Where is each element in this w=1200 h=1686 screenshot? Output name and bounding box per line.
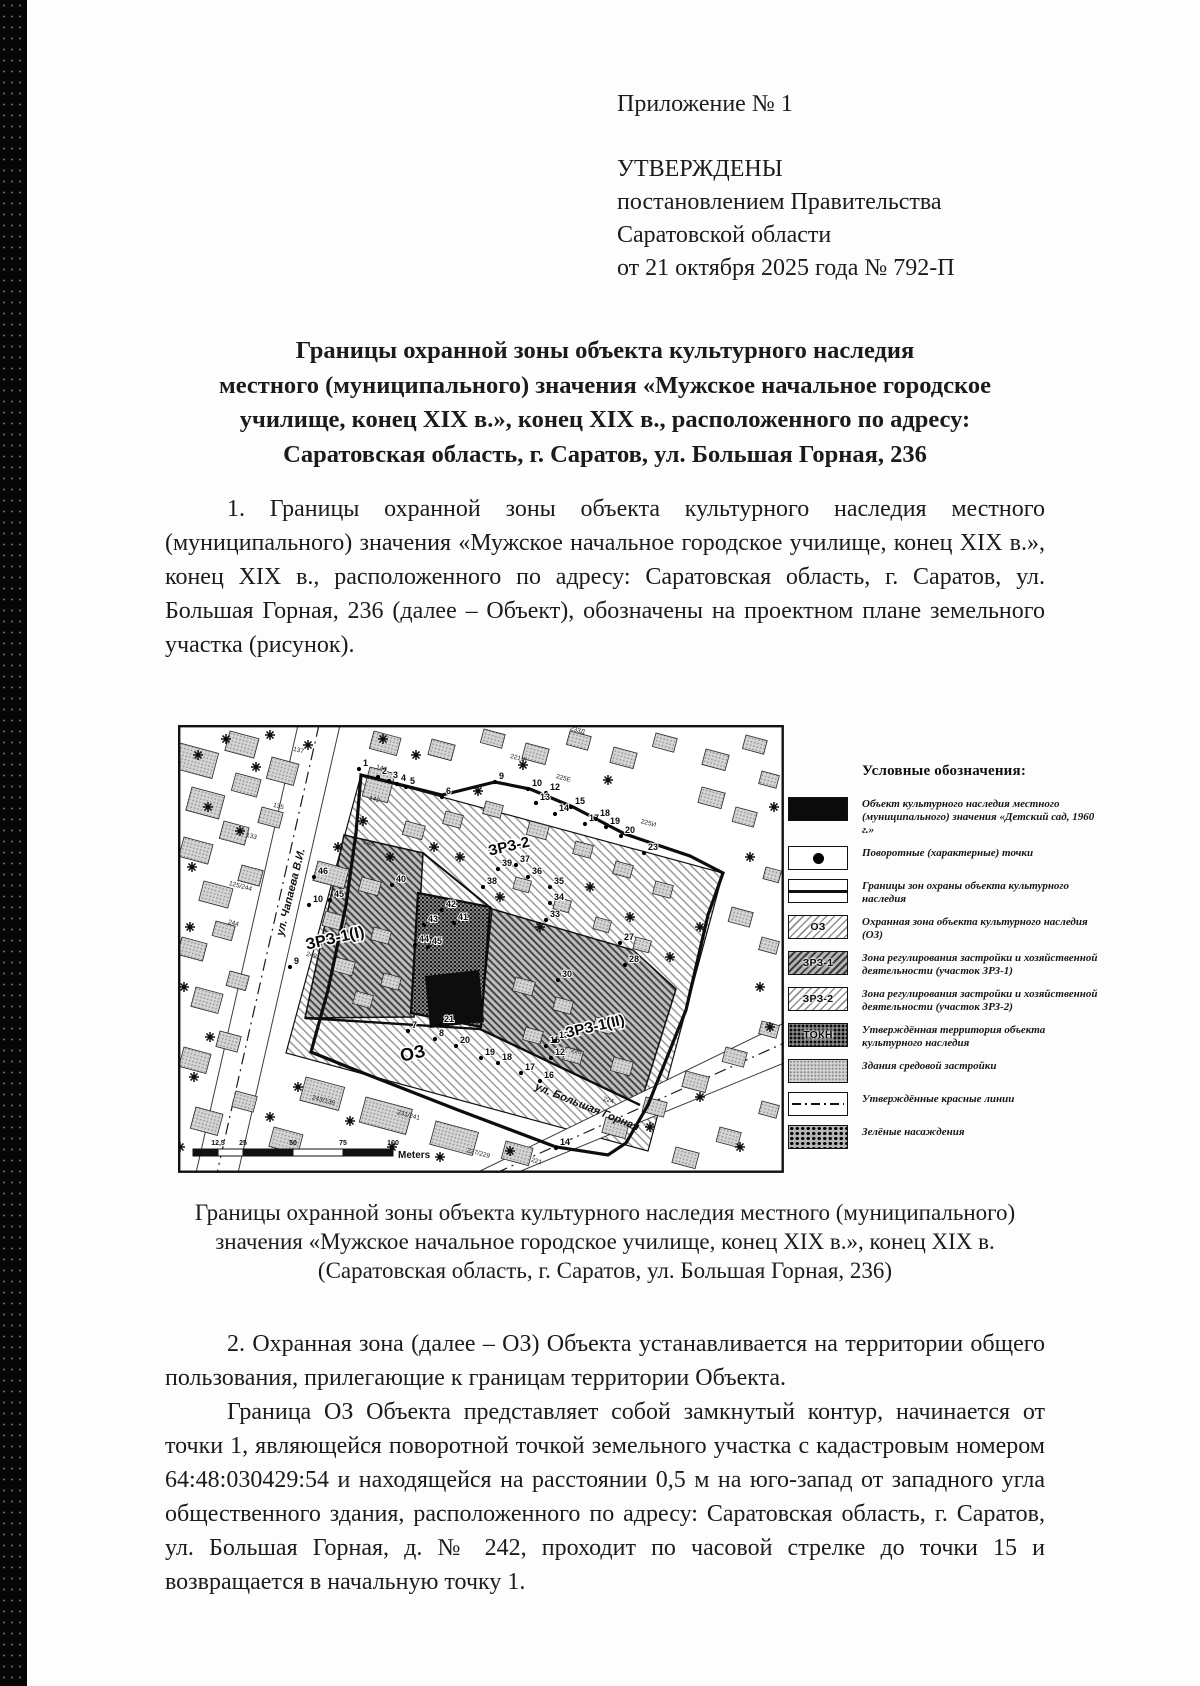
approval-line: постановлением Правительства	[617, 186, 955, 219]
legend-item: Границы зон охраны объекта культурного н…	[788, 879, 1100, 906]
approval-line: Саратовской области	[617, 219, 955, 252]
tree-icon	[333, 842, 343, 852]
scale-tick-label: 75	[339, 1140, 347, 1147]
legend-swatch-sw-hatch: ЗРЗ-2	[788, 987, 848, 1011]
legend-item: ЗРЗ-2Зона регулирования застройки и хозя…	[788, 987, 1100, 1014]
tree-icon	[358, 816, 368, 826]
turning-point-number: 38	[487, 876, 497, 886]
turning-point-number: 34	[554, 892, 564, 902]
approval-line: от 21 октября 2025 года № 792-П	[617, 252, 955, 285]
site-plan-map: 1234569101213141517181920232728303334353…	[178, 725, 784, 1173]
turning-point-dot	[493, 780, 497, 784]
turning-point-dot	[642, 851, 646, 855]
turning-point-number: 30	[562, 969, 572, 979]
turning-point-number: 35	[554, 876, 564, 886]
legend-item: Зелёные насаждения	[788, 1125, 1100, 1149]
legend-label: Объект культурного наследия местного (му…	[862, 797, 1100, 837]
turning-point-dot	[526, 787, 530, 791]
turning-point-dot	[604, 825, 608, 829]
turning-point-dot	[544, 918, 548, 922]
tree-icon	[187, 862, 197, 872]
legend-swatch-sw-object	[788, 797, 848, 821]
legend-label: Зона регулирования застройки и хозяйстве…	[862, 951, 1100, 978]
scale-bar-segment	[293, 1149, 343, 1156]
tree-icon	[293, 1082, 303, 1092]
legend-label: Зона регулирования застройки и хозяйстве…	[862, 987, 1100, 1014]
turning-point-dot	[554, 1146, 558, 1150]
turning-point-dot	[433, 1037, 437, 1041]
turning-point-dot	[454, 1044, 458, 1048]
turning-point-number: 15	[575, 796, 585, 806]
tree-icon	[645, 1122, 655, 1132]
scale-unit-label: Meters	[398, 1150, 431, 1161]
tree-icon	[235, 826, 245, 836]
turning-point-number: 27	[624, 932, 634, 942]
turning-point-dot	[406, 1029, 410, 1033]
legend-item: ТОКНУтверждённая территория объекта куль…	[788, 1023, 1100, 1050]
turning-point-number: 16	[544, 1070, 554, 1080]
turning-point-dot	[404, 785, 408, 789]
turning-point-number: 45	[432, 936, 442, 946]
legend-swatch-sw-point	[788, 846, 848, 870]
turning-point-dot	[376, 775, 380, 779]
tree-icon	[435, 1152, 445, 1162]
legend-swatch-sw-bld	[788, 1059, 848, 1083]
turning-point-dot	[569, 805, 573, 809]
scale-tick-label: 100	[387, 1140, 399, 1147]
turning-point-dot	[553, 812, 557, 816]
turning-point-dot	[328, 898, 332, 902]
turning-point-dot	[549, 1056, 553, 1060]
turning-point-number: 12	[550, 782, 560, 792]
turning-point-number: 42	[446, 899, 456, 909]
scale-tick-label: 25	[239, 1140, 247, 1147]
turning-point-number: 41	[458, 912, 468, 922]
legend-item: ОЗОхранная зона объекта культурного насл…	[788, 915, 1100, 942]
tree-icon	[203, 802, 213, 812]
scale-bar-segment	[343, 1149, 393, 1156]
tree-icon	[265, 730, 275, 740]
tree-icon	[765, 1022, 775, 1032]
turning-point-dot	[452, 921, 456, 925]
turning-point-dot	[548, 901, 552, 905]
turning-point-number: 10	[313, 894, 323, 904]
turning-point-dot	[548, 885, 552, 889]
turning-point-dot	[623, 963, 627, 967]
tree-icon	[769, 802, 779, 812]
turning-point-number: 9	[499, 771, 504, 781]
turning-point-dot	[594, 817, 598, 821]
tree-icon	[193, 750, 203, 760]
turning-point-dot	[479, 1056, 483, 1060]
tree-icon	[429, 842, 439, 852]
tree-icon	[665, 952, 675, 962]
turning-point-dot	[307, 903, 311, 907]
legend-item: Поворотные (характерные) точки	[788, 846, 1100, 870]
legend-label: Охранная зона объекта культурного наслед…	[862, 915, 1100, 942]
turning-point-number: 9	[294, 956, 299, 966]
tree-icon	[745, 852, 755, 862]
turning-point-dot	[395, 782, 399, 786]
scale-bar-segment	[218, 1149, 243, 1156]
legend-label: Утверждённые красные линии	[862, 1092, 1014, 1106]
legend-swatch-sw-hatch: ОЗ	[788, 915, 848, 939]
turning-point-number: 19	[485, 1047, 495, 1057]
figure-caption-line: (Саратовская область, г. Саратов, ул. Бо…	[150, 1256, 1060, 1285]
tree-icon	[695, 1092, 705, 1102]
legend: Условные обозначения: Объект культурного…	[788, 763, 1100, 1158]
tree-icon	[385, 852, 395, 862]
turning-point-number: 12	[555, 1047, 565, 1057]
legend-label: Поворотные (характерные) точки	[862, 846, 1033, 860]
turning-point-number: 19	[610, 816, 620, 826]
document-title: Границы охранной зоны объекта культурног…	[165, 334, 1045, 472]
tree-icon	[189, 1072, 199, 1082]
turning-point-dot	[438, 1023, 442, 1027]
legend-item: Утверждённые красные линии	[788, 1092, 1100, 1116]
legend-label: Утверждённая территория объекта культурн…	[862, 1023, 1100, 1050]
tree-icon	[265, 1112, 275, 1122]
tree-icon	[179, 982, 189, 992]
legend-swatch-text: ОЗ	[810, 921, 825, 933]
legend-swatch-sw-line	[788, 879, 848, 903]
tree-icon	[735, 1142, 745, 1152]
tree-icon	[495, 892, 505, 902]
turning-point-number: 7	[412, 1020, 417, 1030]
tree-icon	[603, 775, 613, 785]
turning-point-number: 28	[629, 954, 639, 964]
turning-point-number: 6	[446, 786, 451, 796]
document-title-line: училище, конец XIX в.», конец XIX в., ра…	[165, 403, 1045, 438]
scale-bar-segment	[243, 1149, 293, 1156]
turning-point-dot	[288, 965, 292, 969]
turning-point-dot	[534, 801, 538, 805]
turning-point-dot	[496, 1061, 500, 1065]
approval-stamp: УТВЕРЖДЕНЫ постановлением Правительства …	[617, 153, 955, 285]
legend-swatch-sw-hatch-dark: ЗРЗ-1	[788, 951, 848, 975]
tree-icon	[585, 882, 595, 892]
turning-point-number: 4	[401, 773, 406, 783]
turning-point-number: 23	[648, 842, 658, 852]
turning-point-dot	[426, 945, 430, 949]
turning-point-number: 40	[396, 874, 406, 884]
document-title-line: местного (муниципального) значения «Мужс…	[165, 369, 1045, 404]
legend-swatch-text: ЗРЗ-2	[803, 993, 834, 1005]
tree-icon	[755, 982, 765, 992]
turning-point-number: 46	[318, 866, 328, 876]
figure-caption-line: Границы охранной зоны объекта культурног…	[150, 1198, 1060, 1227]
turning-point-dot	[519, 1071, 523, 1075]
turning-point-dot	[496, 867, 500, 871]
legend-item: ЗРЗ-1Зона регулирования застройки и хозя…	[788, 951, 1100, 978]
scale-tick-label: 50	[289, 1140, 297, 1147]
legend-item: Здания средовой застройки	[788, 1059, 1100, 1083]
turning-point-number: 13	[540, 792, 550, 802]
scale-bar-segment	[193, 1149, 218, 1156]
tree-icon	[625, 912, 635, 922]
tree-icon	[185, 922, 195, 932]
legend-item: Объект культурного наследия местного (му…	[788, 797, 1100, 837]
turning-point-dot	[514, 863, 518, 867]
turning-point-dot	[440, 795, 444, 799]
turning-point-number: 10	[532, 778, 542, 788]
turning-point-dot	[312, 875, 316, 879]
paragraph-3: Граница ОЗ Объекта представляет собой за…	[165, 1395, 1045, 1599]
scale-tick-label: 12,5	[211, 1140, 225, 1147]
turning-point-dot	[413, 943, 417, 947]
paragraph-1: 1. Границы охранной зоны объекта культур…	[165, 492, 1045, 662]
document-title-line: Границы охранной зоны объекта культурног…	[165, 334, 1045, 369]
scan-edge-band	[0, 0, 27, 1686]
turning-point-number: 37	[520, 854, 530, 864]
document-title-line: Саратовская область, г. Саратов, ул. Бол…	[165, 438, 1045, 473]
approved-word: УТВЕРЖДЕНЫ	[617, 153, 955, 186]
legend-swatch-sw-green	[788, 1125, 848, 1149]
legend-swatch-sw-red	[788, 1092, 848, 1116]
turning-point-dot	[553, 1039, 557, 1043]
legend-swatch-text: ТОКН	[803, 1029, 833, 1041]
turning-point-dot	[387, 779, 391, 783]
turning-point-number: 17	[525, 1062, 535, 1072]
turning-point-number: 33	[550, 909, 560, 919]
turning-point-number: 43	[428, 914, 438, 924]
tree-icon	[251, 762, 261, 772]
tree-icon	[411, 750, 421, 760]
annex-label: Приложение № 1	[617, 88, 793, 121]
turning-point-number: 36	[532, 866, 542, 876]
tree-icon	[205, 1032, 215, 1042]
turning-point-dot	[390, 883, 394, 887]
turning-point-number: 8	[439, 1028, 444, 1038]
legend-label: Границы зон охраны объекта культурного н…	[862, 879, 1100, 906]
turning-point-number: 14	[559, 803, 569, 813]
turning-point-dot	[357, 767, 361, 771]
turning-point-dot	[481, 885, 485, 889]
tree-icon	[455, 852, 465, 862]
turning-point-dot	[422, 923, 426, 927]
tree-icon	[221, 734, 231, 744]
legend-swatch-sw-tokn: ТОКН	[788, 1023, 848, 1047]
turning-point-number: 21	[444, 1014, 454, 1024]
heritage-object-building	[425, 970, 484, 1028]
legend-label: Здания средовой застройки	[862, 1059, 996, 1073]
turning-point-dot	[544, 1044, 548, 1048]
figure-caption: Границы охранной зоны объекта культурног…	[150, 1198, 1060, 1285]
legend-label: Зелёные насаждения	[862, 1125, 965, 1139]
turning-point-number: 44	[419, 934, 429, 944]
turning-point-dot	[618, 941, 622, 945]
turning-point-number: 45	[334, 889, 344, 899]
figure-caption-line: значения «Мужское начальное городское уч…	[150, 1227, 1060, 1256]
tree-icon	[345, 1116, 355, 1126]
tree-icon	[535, 922, 545, 932]
turning-point-dot	[556, 978, 560, 982]
turning-point-dot	[619, 834, 623, 838]
turning-point-number: 18	[600, 808, 610, 818]
turning-point-dot	[526, 875, 530, 879]
page: Приложение № 1 УТВЕРЖДЕНЫ постановлением…	[0, 0, 1200, 1686]
legend-swatch-text: ЗРЗ-1	[803, 957, 834, 969]
tree-icon	[505, 1146, 515, 1156]
turning-point-dot	[440, 908, 444, 912]
turning-point-number: 1	[363, 758, 368, 768]
figure: 1234569101213141517181920232728303334353…	[178, 725, 784, 1173]
tree-icon	[378, 734, 388, 744]
paragraph-2: 2. Охранная зона (далее – ОЗ) Объекта ус…	[165, 1327, 1045, 1599]
turning-point-number: 39	[502, 858, 512, 868]
turning-point-number: 18	[502, 1052, 512, 1062]
turning-point-dot	[583, 822, 587, 826]
legend-items: Объект культурного наследия местного (му…	[788, 797, 1100, 1149]
turning-point-number: 3	[393, 770, 398, 780]
turning-point-number: 20	[460, 1035, 470, 1045]
turning-point-number: 5	[410, 776, 415, 786]
turning-point-number: 20	[625, 825, 635, 835]
turning-point-number: 14	[560, 1137, 570, 1147]
legend-title: Условные обозначения:	[862, 763, 1100, 780]
